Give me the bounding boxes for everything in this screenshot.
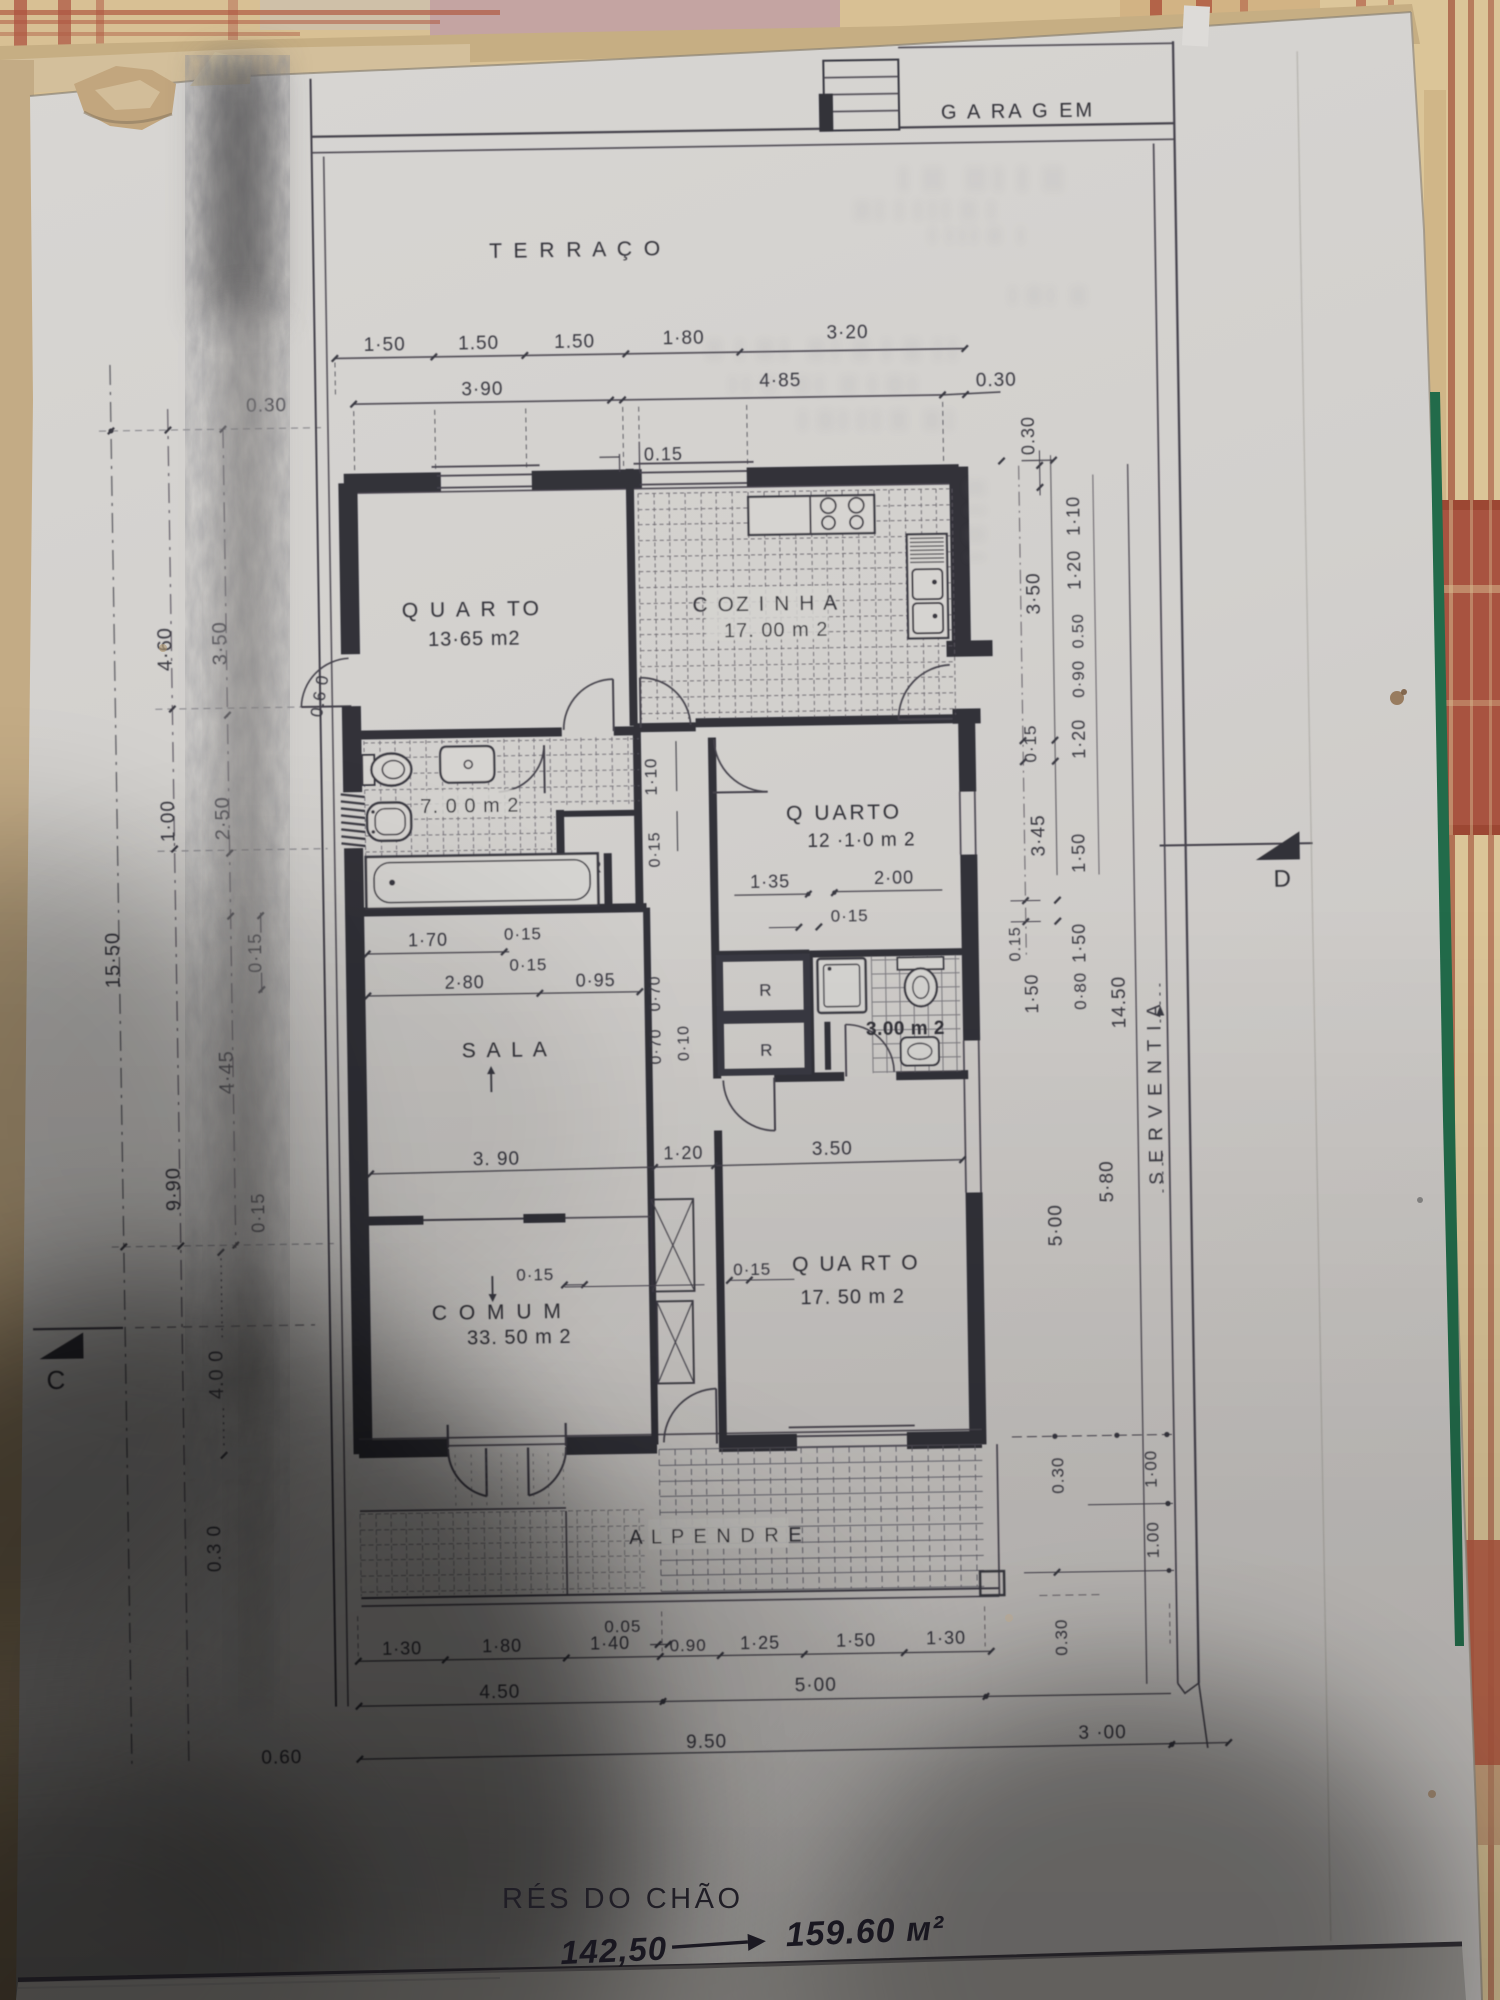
svg-text:RÉS DO CHÃO: RÉS DO CHÃO	[502, 1881, 744, 1915]
svg-text:159.60 м²: 159.60 м²	[785, 1909, 946, 1954]
